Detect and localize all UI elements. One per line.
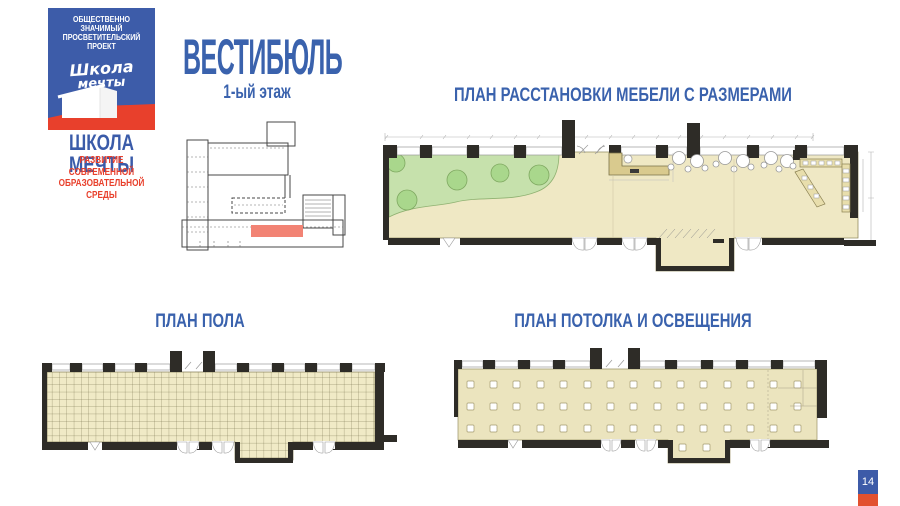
key-plan-drawing [180,112,360,262]
slide: ОБЩЕСТВЕННО ЗНАЧИМЫЙ ПРОСВЕТИТЕЛЬСКИЙ ПР… [0,0,900,506]
floor-plan-title: ПЛАН ПОЛА [67,311,332,333]
logo-tagline-line2: ОБРАЗОВАТЕЛЬНОЙ СРЕДЫ [54,178,148,201]
logo-project-line2: ПРОСВЕТИТЕЛЬСКИЙ ПРОЕКТ [54,33,148,51]
page-title: ВЕСТИБЮЛЬ [183,34,342,80]
logo-tagline: РАЗВИТИЕ СОВРЕМЕННОЙ ОБРАЗОВАТЕЛЬНОЙ СРЕ… [54,155,148,201]
page-number-badge: 14 [858,470,878,506]
floor-plan-drawing [30,348,400,470]
vestibule-highlight [251,225,303,237]
ceiling-plan-drawing [448,348,838,470]
school-building-icon [48,84,155,130]
page-number: 14 [858,470,878,494]
badge-red-stripe [858,494,878,506]
logo: ОБЩЕСТВЕННО ЗНАЧИМЫЙ ПРОСВЕТИТЕЛЬСКИЙ ПР… [48,8,155,130]
furniture-plan-drawing [383,112,883,277]
floor-label: 1-ый этаж [204,82,311,104]
furniture-plan-title: ПЛАН РАССТАНОВКИ МЕБЕЛИ С РАЗМЕРАМИ [436,85,810,107]
logo-project-type: ОБЩЕСТВЕННО ЗНАЧИМЫЙ ПРОСВЕТИТЕЛЬСКИЙ ПР… [54,15,148,51]
logo-project-line1: ОБЩЕСТВЕННО ЗНАЧИМЫЙ [54,15,148,33]
ceiling-plan-title: ПЛАН ПОТОЛКА И ОСВЕЩЕНИЯ [489,311,778,333]
logo-tagline-line1: РАЗВИТИЕ СОВРЕМЕННОЙ [54,155,148,178]
